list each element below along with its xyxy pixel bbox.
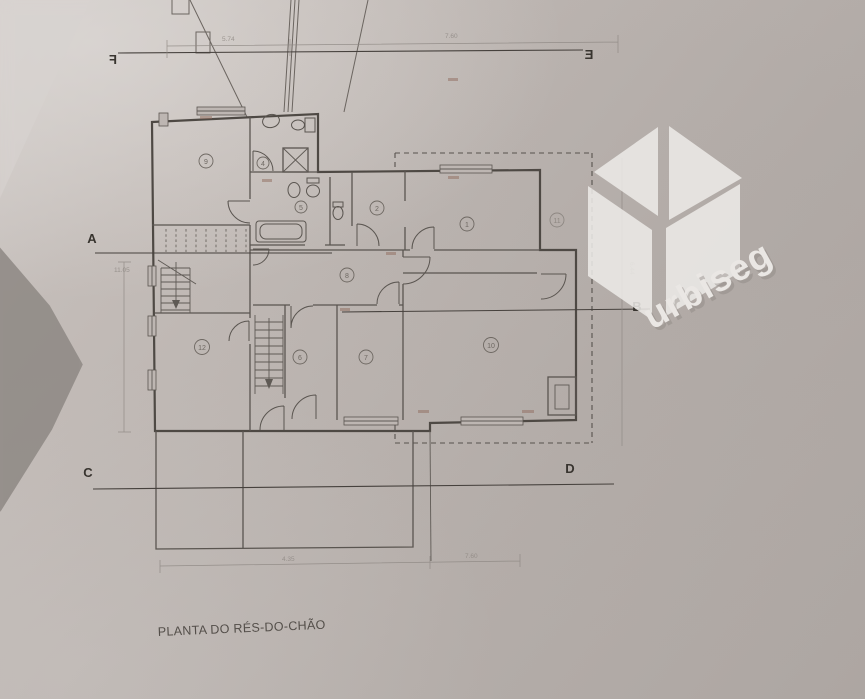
room-label: 11 (550, 213, 564, 227)
shaft-x-box (283, 148, 308, 172)
site-boundary-lines (172, 0, 368, 117)
floorplan-drawing: F E 5.74 7.60 (0, 0, 865, 699)
staircase-lower (255, 315, 283, 394)
washbasin (288, 183, 300, 198)
stair-arrow-down (172, 300, 180, 309)
toilet-bowl (333, 207, 343, 220)
toilet-tank (305, 118, 315, 132)
section-line-cd: C D (83, 461, 614, 489)
room-label: 1 (460, 217, 474, 231)
dimension-top-left: 5.74 (222, 36, 235, 43)
staircase-upper (158, 229, 246, 313)
stair-arrow-down (265, 379, 273, 389)
fireplace (548, 377, 576, 415)
section-letter-a: A (87, 231, 97, 246)
svg-text:8: 8 (345, 273, 349, 280)
plan-title: PLANTA DO RÉS-DO-CHÃO (157, 617, 325, 639)
toilet-bowl (307, 185, 320, 197)
svg-text:7: 7 (364, 355, 368, 362)
svg-text:5: 5 (299, 205, 303, 212)
toilet-bowl (292, 120, 305, 130)
toilet-tank (307, 178, 319, 183)
dimension-bottom-left: 4.35 (282, 556, 295, 563)
dimension-left-height: 11.05 (114, 267, 130, 274)
dimension-bottom-right: 7.60 (465, 553, 478, 560)
svg-text:11: 11 (553, 218, 560, 225)
section-line-b: B (342, 299, 650, 314)
dashed-terrace-outline (395, 153, 592, 443)
dimension-line-top: 5.74 7.60 (167, 33, 618, 58)
section-line-ef: F E (109, 47, 593, 67)
svg-text:2: 2 (375, 206, 379, 213)
section-letter-d: D (565, 461, 574, 476)
room-label: 9 (199, 154, 213, 168)
room-label: 10 (484, 338, 499, 353)
watermark: urbiseg urbiseg (588, 126, 782, 340)
room-label: 4 (257, 157, 269, 169)
section-letter-f: F (109, 52, 117, 67)
bathtub-inner (260, 224, 302, 239)
section-letter-c: C (83, 465, 93, 480)
svg-text:9: 9 (204, 159, 208, 166)
section-letter-e: E (584, 47, 593, 62)
room-label: 2 (370, 201, 384, 215)
dimension-top-right: 7.60 (445, 33, 458, 40)
dimension-line-bottom: 4.35 7.60 (160, 553, 520, 573)
windows (148, 107, 523, 425)
patio-walls (156, 431, 431, 561)
svg-text:1: 1 (465, 222, 469, 229)
svg-text:10: 10 (487, 343, 495, 350)
room-label: 8 (340, 268, 354, 282)
room-label: 7 (359, 350, 373, 364)
dimension-line-left: 11.05 (114, 262, 131, 432)
svg-text:4: 4 (261, 161, 265, 168)
door-arcs (228, 151, 566, 430)
svg-text:12: 12 (198, 345, 206, 352)
floorplan-photo: F E 5.74 7.60 (0, 0, 865, 699)
room-label: 12 (195, 340, 210, 355)
room-label: 5 (295, 201, 307, 213)
room-label: 6 (293, 350, 307, 364)
svg-text:6: 6 (298, 355, 302, 362)
